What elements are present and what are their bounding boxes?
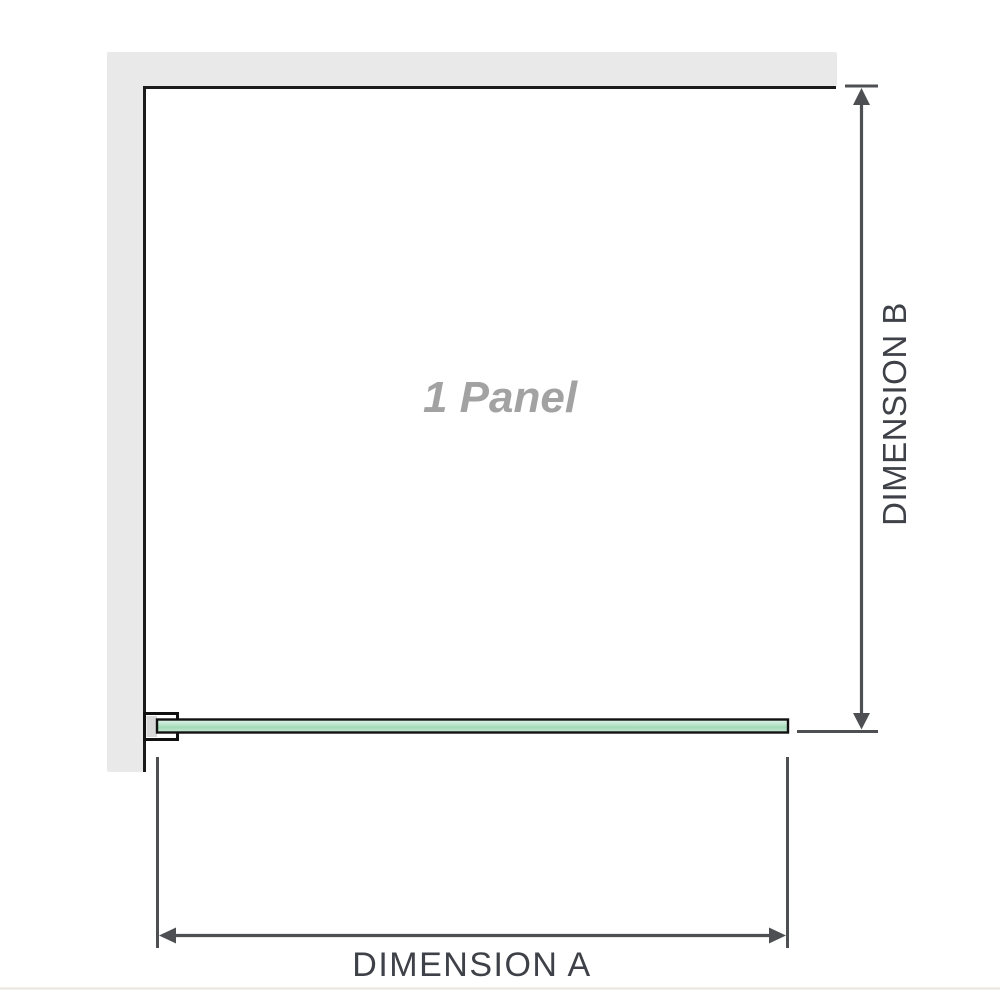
diagram-canvas: 1 Panel DIMENSION B DIMENSION A	[0, 0, 1000, 1000]
wall-top	[107, 52, 837, 86]
shower-panel-diagram: 1 Panel DIMENSION B DIMENSION A	[0, 0, 1000, 1000]
wall-left	[107, 52, 143, 772]
dimension-b-group: DIMENSION B	[797, 86, 913, 732]
dimension-b-arrow-down-icon	[853, 713, 870, 730]
wall-bracket-pad	[147, 716, 158, 737]
dimension-b-arrow-up-icon	[853, 88, 870, 105]
dimension-a-label: DIMENSION A	[352, 946, 591, 984]
dimension-b-label: DIMENSION B	[876, 302, 913, 526]
dimension-a-arrow-right-icon	[769, 928, 786, 944]
dimension-a-arrow-left-icon	[159, 928, 176, 944]
panel-count-label: 1 Panel	[423, 373, 578, 422]
glass-panel-bar	[157, 720, 788, 733]
dimension-a-group: DIMENSION A	[158, 757, 788, 984]
